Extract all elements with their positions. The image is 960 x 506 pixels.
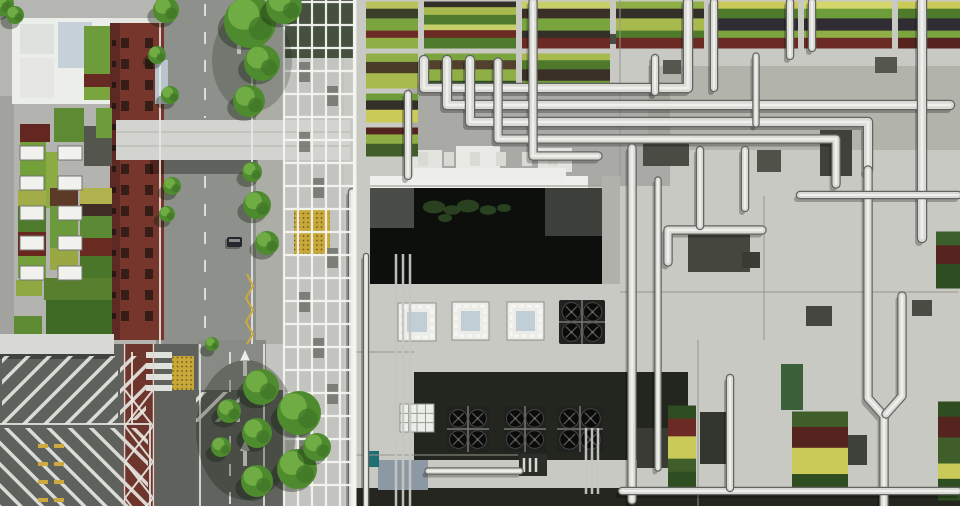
aerial-photo [0, 0, 960, 506]
aerial-scene-svg [0, 0, 960, 506]
